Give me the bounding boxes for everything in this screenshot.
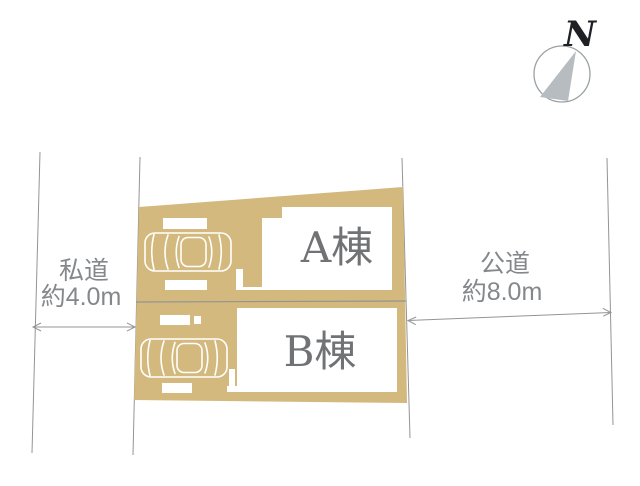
parking-dash (194, 316, 201, 324)
parking-dash (162, 383, 192, 393)
left-road-width-label: 約4.0m (41, 283, 122, 311)
building-a-footprint-step (262, 218, 282, 290)
building-a-entrance-step (243, 269, 262, 287)
right-road-width-arrow (408, 308, 611, 324)
building-b-entrance (229, 369, 235, 388)
left-outer-boundary-line (32, 152, 40, 453)
compass-north-label: N (563, 14, 598, 55)
right-road-width-label: 約8.0m (462, 278, 543, 306)
building-a-label: A棟 (300, 223, 373, 272)
right-outer-boundary-line (607, 158, 613, 425)
parking-dash (163, 218, 207, 229)
compass: N (534, 14, 598, 102)
left-road-width-arrow (33, 323, 135, 331)
building-b-label: B棟 (284, 327, 357, 376)
site-plan-page: 私道 約4.0m 公道 約8.0m A棟 B棟 N (0, 0, 640, 486)
parking-dash (160, 315, 190, 325)
right-road-name-label: 公道 (480, 250, 530, 278)
site-plan-drawing: 私道 約4.0m 公道 約8.0m A棟 B棟 N (0, 0, 640, 486)
parking-dash (165, 280, 207, 290)
left-road-name-label: 私道 (59, 257, 109, 285)
